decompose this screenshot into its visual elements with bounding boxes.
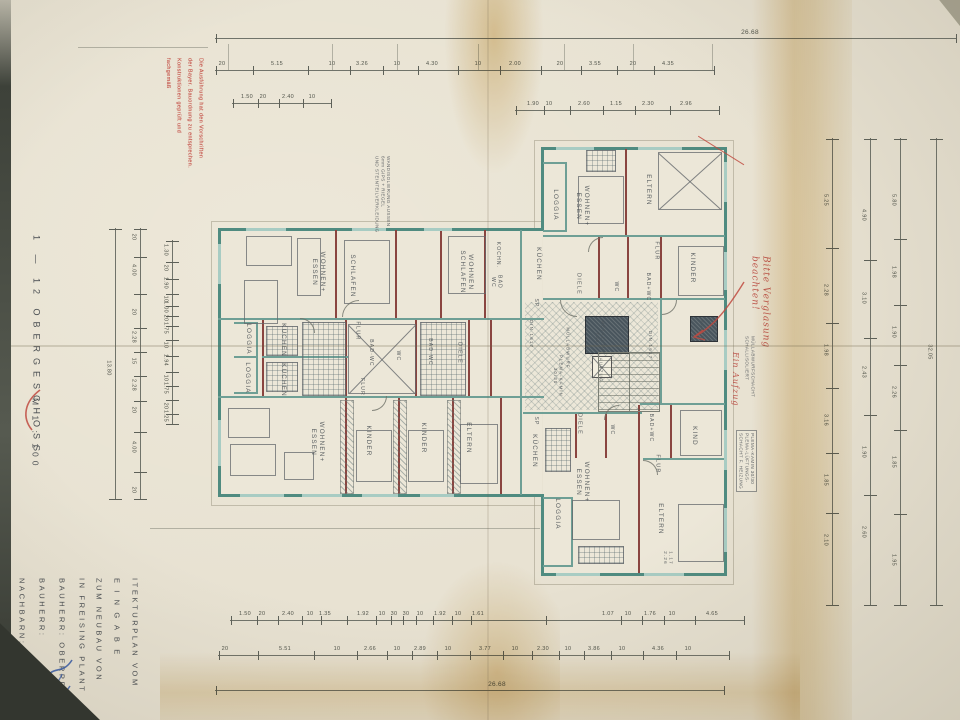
exterior-wall [541, 494, 544, 576]
room-label: MÜLLABWURF [565, 327, 570, 368]
interior-wall [660, 300, 662, 403]
dim-label: 4.65 [706, 611, 718, 617]
window [240, 494, 284, 497]
dim-tick [233, 99, 234, 108]
dim-label: 30 [403, 611, 410, 617]
room-label: KÜCHEN [534, 247, 542, 281]
dim-label: 2.10 [822, 534, 829, 546]
room-label: KOCHN. [495, 242, 501, 269]
dim-tick [134, 229, 147, 230]
dim-line [215, 690, 725, 691]
dim-tick [544, 106, 545, 115]
dim-label: 1.07 [602, 611, 614, 617]
dim-tick [166, 262, 179, 263]
dim-label: 2.89 [414, 646, 426, 652]
dim-label: 3.16 [822, 414, 829, 426]
interior-wall [543, 235, 725, 237]
window [424, 228, 452, 231]
room-label: KIND [690, 426, 698, 446]
dim-label: 3.26 [356, 61, 368, 67]
dim-label: 10 [512, 646, 519, 652]
dim-tick [719, 106, 720, 115]
red-check-mark [18, 388, 44, 434]
dim-tick [621, 616, 622, 625]
dim-tick [894, 514, 907, 515]
dim-label: 10 [162, 375, 169, 382]
dim-label: 10 [565, 646, 572, 652]
dim-tick [437, 651, 438, 660]
dim-tick [134, 328, 147, 329]
interior-wall-red [490, 320, 492, 396]
dim-tick [416, 616, 417, 625]
dim-tick [516, 106, 517, 115]
kitchen-fixture [302, 322, 346, 396]
dim-tick [258, 99, 259, 108]
dim-tick [412, 651, 413, 660]
room-label: SCHLAFEN [348, 254, 356, 297]
interior-wall [565, 162, 567, 232]
dim-label: 32.05 [926, 344, 933, 359]
dim-line [230, 620, 745, 621]
interior-wall-red [500, 398, 502, 494]
dim-tick [864, 139, 877, 140]
dim-label: 1.75 [162, 382, 169, 394]
dim-tick [258, 651, 259, 660]
dim-label: 2.66 [364, 646, 376, 652]
dim-tick [134, 472, 147, 473]
dim-tick [664, 616, 665, 625]
dim-label: 15 [130, 358, 137, 365]
dim-label: 1.50 [239, 611, 251, 617]
dim-tick [500, 66, 501, 75]
interior-wall [234, 356, 258, 358]
dim-label: 20 [557, 61, 564, 67]
dim-label: 10 [625, 611, 632, 617]
dim-tick [134, 376, 147, 377]
dim-tick [383, 66, 384, 75]
dim-line [870, 138, 871, 606]
vent-note: PLEMA-KAMIN 30/30 PLEMA-LÜFTUNGS- SCHACH… [736, 430, 757, 492]
dim-label: 2.43 [860, 366, 867, 378]
room-label: BAD·WC [427, 338, 433, 365]
dim-label: 20 [130, 487, 137, 494]
dim-tick [826, 605, 839, 606]
room-label: WOHNEN SCHLAFEN [458, 250, 474, 293]
dim-line [936, 138, 937, 606]
dim-tick [331, 99, 332, 108]
dim-label: 2.28 [130, 331, 137, 343]
window [724, 508, 727, 552]
kitchen-fixture [545, 428, 571, 472]
title-block-line: E I N G A B E [112, 578, 121, 720]
dim-label: 2.96 [680, 101, 692, 107]
extension-line [228, 44, 229, 70]
dim-tick [387, 651, 388, 660]
dim-label: 13.80 [105, 360, 112, 375]
interior-wall-red [468, 320, 470, 396]
room-label: WC [613, 282, 619, 293]
dim-tick [134, 401, 147, 402]
room-label: WOHNEN+ ESSEN [310, 252, 326, 293]
dim-line [172, 240, 173, 425]
room-label: LOGGIA [553, 498, 561, 529]
dim-label: 20 [162, 265, 169, 272]
stair-rail [629, 353, 630, 411]
window [218, 420, 221, 466]
dim-tick [471, 616, 472, 625]
dim-label: 1.90 [890, 326, 897, 338]
room-label: WOHNEN+ ESSEN [574, 462, 590, 503]
window [362, 494, 398, 497]
room-label: BAD·WC [368, 339, 374, 366]
window [218, 244, 221, 284]
interior-wall-red [627, 237, 629, 298]
dim-label: 2.30 [537, 646, 549, 652]
dim-label: 1.85 [890, 456, 897, 468]
dim-label: 1.61 [472, 611, 484, 617]
dim-tick [376, 616, 377, 625]
room-label: FLUR [354, 321, 361, 340]
room-label: KÜCHEN [279, 323, 287, 357]
dim-tick [350, 66, 351, 75]
interior-wall [543, 162, 567, 164]
window [644, 573, 684, 576]
dim-tick [279, 99, 280, 108]
furniture [678, 504, 724, 562]
title-block-line: ITEKTURPLAN VOM [130, 578, 139, 720]
dim-line [832, 138, 833, 606]
room-label: LOGGIA [243, 362, 251, 393]
exterior-wall [541, 147, 544, 231]
dim-tick [654, 66, 655, 75]
dim-tick [635, 106, 636, 115]
dim-tick [826, 248, 839, 249]
dim-label: 1.90 [162, 277, 169, 289]
room-label: WOHNEN+ ESSEN [309, 422, 325, 463]
dim-tick [134, 499, 147, 500]
window [302, 494, 342, 497]
dim-label: 10 [417, 611, 424, 617]
dim-label: 4.00 [130, 264, 137, 276]
dim-tick [864, 338, 877, 339]
dim-label: 20 [130, 234, 137, 241]
dim-label: 10 [394, 646, 401, 652]
dim-label: 1.35 [319, 611, 331, 617]
dim-tick [308, 66, 309, 75]
room-label: KINDER [419, 423, 427, 454]
dim-tick [418, 66, 419, 75]
room-label: KÜCHEN [530, 434, 538, 468]
room-label: SP [533, 298, 539, 307]
room-label: ELTERN [656, 503, 664, 535]
dim-tick [216, 686, 217, 695]
dim-label: 10 [309, 94, 316, 100]
dim-line [215, 38, 957, 39]
dim-label: 3.86 [588, 646, 600, 652]
dim-tick [864, 495, 877, 496]
interior-wall [520, 230, 522, 495]
dim-label: 2.30 [642, 101, 654, 107]
extension-line [564, 44, 565, 70]
dim-line [900, 138, 901, 606]
dim-tick [676, 651, 677, 660]
dim-label: 20 [162, 403, 169, 410]
dim-line [115, 228, 116, 500]
dim-label: 10 [379, 611, 386, 617]
dim-tick [253, 66, 254, 75]
dim-label: 10 [334, 646, 341, 652]
approval-stamp: Die Ausführung hat den Vorschriften der … [162, 58, 205, 168]
dim-tick [257, 616, 258, 625]
dim-tick [894, 605, 907, 606]
interior-wall-red [335, 230, 337, 318]
dim-label: 10 [455, 611, 462, 617]
interior-wall-red [262, 320, 264, 396]
dim-label: 1.75 [162, 322, 169, 334]
dim-tick [670, 106, 671, 115]
interior-wall-red [395, 230, 397, 318]
dim-tick [166, 400, 179, 401]
dim-tick [278, 616, 279, 625]
interior-wall [543, 230, 567, 232]
room-label: SP [533, 416, 539, 425]
wardrobe-strip [447, 400, 461, 494]
room-label: DIN 1617 [647, 331, 653, 360]
handwritten-note: Ein Aufzug [730, 352, 740, 406]
dim-tick [216, 66, 217, 75]
window [724, 430, 727, 470]
dim-label: 10 [669, 611, 676, 617]
dim-label: 20 [130, 309, 137, 316]
room-label: DIELE [575, 273, 582, 295]
dim-label: 10 [619, 646, 626, 652]
dim-label: 5.80 [890, 194, 897, 206]
dim-label: 1.25 [162, 410, 169, 422]
dim-label: 3.77 [479, 646, 491, 652]
furniture [246, 236, 292, 266]
furniture [572, 500, 620, 540]
wardrobe-strip [340, 400, 354, 494]
blueprint-photo: WOHNEN+ ESSENSCHLAFENWOHNEN SCHLAFENKOCH… [0, 0, 960, 720]
dim-label: 4.00 [130, 441, 137, 453]
dim-label: 3.10 [860, 292, 867, 304]
dim-tick [109, 499, 122, 500]
dim-label: 10 [307, 611, 314, 617]
interior-wall-red [670, 405, 672, 458]
extension-line [478, 44, 479, 70]
dim-label: 4.35 [662, 61, 674, 67]
dim-label: 26.68 [488, 681, 506, 688]
dim-tick [314, 651, 315, 660]
dim-tick [894, 430, 907, 431]
dim-tick [930, 605, 943, 606]
dim-tick [584, 651, 585, 660]
dim-tick [452, 616, 453, 625]
interior-wall [523, 412, 642, 414]
dim-label: 26.68 [741, 29, 759, 36]
dim-tick [643, 651, 644, 660]
room-label: DIN 1617 [528, 320, 534, 349]
dim-tick [134, 352, 147, 353]
room-label: LOGGIA [551, 189, 559, 220]
window [246, 228, 286, 231]
interior-wall-red [605, 414, 607, 458]
dim-label: 3.55 [589, 61, 601, 67]
dim-tick [724, 686, 725, 695]
room-label: KÜCHEN [279, 363, 287, 397]
interior-wall [256, 322, 258, 394]
room-label: KINDER [364, 426, 372, 457]
interior-wall-red [638, 405, 640, 573]
dim-tick [570, 106, 571, 115]
window [724, 162, 727, 202]
dim-tick [864, 605, 877, 606]
dim-tick [532, 651, 533, 660]
room-label: BAD+WC [648, 414, 654, 443]
dim-label: 20 [130, 407, 137, 414]
kitchen-fixture [578, 546, 624, 564]
dim-label: 1.76 [644, 611, 656, 617]
dim-label: 1.98 [822, 344, 829, 356]
dim-tick [503, 651, 504, 660]
dim-line [140, 228, 141, 500]
dim-label: 1.50 [241, 94, 253, 100]
dim-label: 30 [391, 611, 398, 617]
room-label: FLUR [654, 454, 661, 473]
room-label: DIELE [456, 342, 463, 364]
room-label: LOGGIA [244, 323, 252, 354]
dim-label: 1.15 [610, 101, 622, 107]
dim-tick [642, 616, 643, 625]
dim-tick [541, 66, 542, 75]
dim-tick [458, 66, 459, 75]
construction-note: WANDISOLIERUNG AUSSEN 6mm GIPS + RIEGEL … [374, 156, 391, 233]
dim-label: 10 [162, 342, 169, 349]
room-label: BAD+WC [645, 273, 651, 302]
dim-tick [603, 106, 604, 115]
dim-tick [403, 616, 404, 625]
dim-label: 1.00 [162, 301, 169, 313]
room-label: FLUR [653, 241, 660, 260]
room-label: ELTERN [464, 422, 472, 454]
dim-tick [617, 66, 618, 75]
dim-label: 5.15 [271, 61, 283, 67]
dim-tick [134, 257, 147, 258]
dim-label: 4.30 [426, 61, 438, 67]
furniture [680, 410, 722, 456]
extension-line [397, 44, 398, 70]
dim-label: 1.92 [434, 611, 446, 617]
dim-label: 2.40 [282, 94, 294, 100]
staircase [598, 352, 660, 412]
extension-line [78, 47, 208, 48]
dim-tick [894, 239, 907, 240]
dim-line [218, 655, 730, 656]
dim-label: 4.90 [860, 209, 867, 221]
dim-tick [695, 616, 696, 625]
dim-label: 2.00 [509, 61, 521, 67]
dim-label: 20 [162, 315, 169, 322]
dim-line [232, 103, 332, 104]
dim-label: 2.28 [130, 379, 137, 391]
dim-line [515, 110, 720, 111]
extension-line [332, 44, 333, 70]
dim-tick [302, 616, 303, 625]
interior-wall [543, 565, 573, 567]
dim-label: 20 [259, 611, 266, 617]
kitchen-fixture [586, 150, 616, 172]
interior-wall-red [440, 230, 442, 318]
dim-label: 10 [445, 646, 452, 652]
room-label: METALLTÜR T30 [595, 320, 606, 355]
room-label: WC [609, 425, 615, 436]
room-label: ELTERN [644, 174, 652, 206]
dim-tick [546, 616, 547, 625]
dim-tick [433, 616, 434, 625]
dim-label: 10 [685, 646, 692, 652]
dim-label: 4.36 [652, 646, 664, 652]
dim-label: 1.30 [162, 244, 169, 256]
interior-wall-red [625, 149, 627, 235]
dim-tick [166, 372, 179, 373]
dim-label: 1.90 [527, 101, 539, 107]
dim-tick [894, 305, 907, 306]
dim-tick [744, 616, 745, 625]
dim-tick [826, 388, 839, 389]
dim-label: 1.95 [890, 554, 897, 566]
dim-label: 20 [222, 646, 229, 652]
room-label: BAD WC [490, 275, 503, 289]
interior-wall-red [660, 237, 662, 298]
room-label: WOHNEN+ ESSEN [574, 186, 590, 227]
extension-line [150, 528, 540, 529]
room-label: WC [395, 351, 401, 362]
wardrobe-strip [393, 400, 407, 494]
signature [8, 636, 94, 720]
dim-tick [956, 34, 957, 43]
dim-label: 2.60 [860, 526, 867, 538]
dim-tick [930, 139, 943, 140]
dim-tick [611, 651, 612, 660]
dim-tick [347, 616, 348, 625]
dim-tick [826, 323, 839, 324]
room-label: DIELE [576, 413, 583, 435]
dim-tick [826, 513, 839, 514]
dim-tick [581, 66, 582, 75]
dim-label: 1.94 [162, 354, 169, 366]
dim-label: 2.26 [890, 386, 897, 398]
dim-tick [729, 651, 730, 660]
furniture [230, 444, 276, 476]
dim-label: 1.90 [860, 446, 867, 458]
room-label: 1.17 2.26 [662, 551, 673, 565]
furniture [356, 430, 392, 482]
shaft-dark [585, 316, 629, 354]
dim-tick [109, 229, 122, 230]
window [556, 573, 600, 576]
room-label: PLEMA-KAMIN 30/30 [553, 355, 564, 397]
dim-tick [470, 651, 471, 660]
dim-tick [826, 139, 839, 140]
dim-tick [166, 241, 179, 242]
title-block-line: ZUM NEUBAU VON [94, 578, 103, 720]
dim-tick [303, 99, 304, 108]
dim-tick [864, 260, 877, 261]
dim-line [215, 70, 715, 71]
closet-crossed [658, 152, 722, 210]
dim-label: 2.28 [822, 284, 829, 296]
dim-label: 10 [546, 101, 553, 107]
